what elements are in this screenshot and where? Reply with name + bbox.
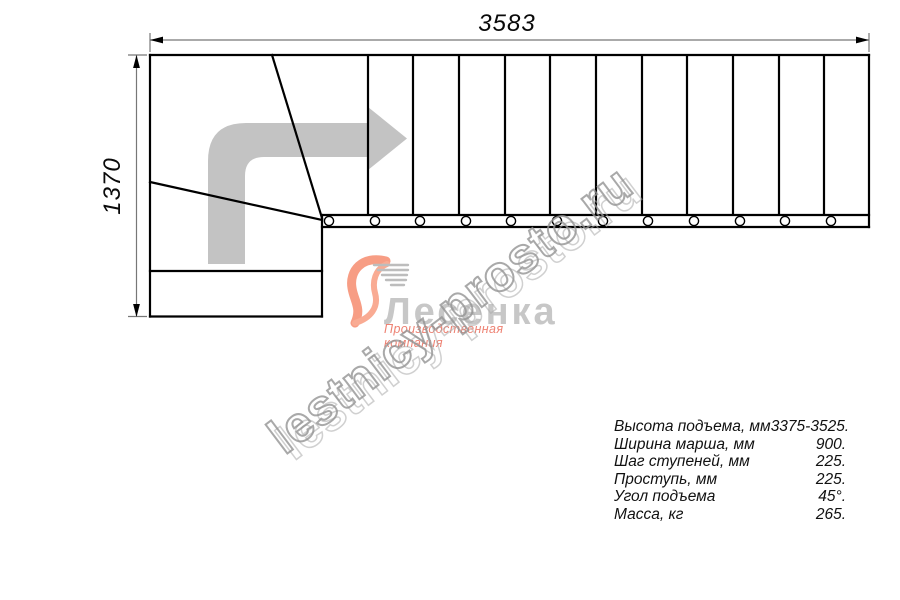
dimension-width-label: 3583 xyxy=(447,10,567,38)
spec-label: Проступь, мм xyxy=(614,471,717,489)
stair-outline xyxy=(150,55,869,317)
spec-row-step-pitch: Шаг ступеней, мм 225. xyxy=(614,453,846,471)
spec-value: 265. xyxy=(816,506,846,524)
spec-row-tread: Проступь, мм 225. xyxy=(614,471,846,489)
spec-value: 3375-3525. xyxy=(771,418,849,436)
spec-value: 900. xyxy=(816,436,846,454)
spec-row-height: Высота подъема, мм 3375-3525. xyxy=(614,418,846,436)
tread-lines xyxy=(368,55,824,215)
spec-value: 225. xyxy=(816,471,846,489)
spec-value: 225. xyxy=(816,453,846,471)
spec-value: 45°. xyxy=(818,488,846,506)
baluster-circles xyxy=(324,216,835,225)
spec-label: Шаг ступеней, мм xyxy=(614,453,750,471)
spec-label: Угол подъема xyxy=(614,488,715,506)
dimension-height-label: 1370 xyxy=(99,126,127,246)
direction-arrow-icon xyxy=(208,107,407,264)
spec-row-mass: Масса, кг 265. xyxy=(614,506,846,524)
spec-label: Высота подъема, мм xyxy=(614,418,771,436)
spec-row-angle: Угол подъема 45°. xyxy=(614,488,846,506)
spec-row-flight-width: Ширина марша, мм 900. xyxy=(614,436,846,454)
spec-label: Масса, кг xyxy=(614,506,683,524)
logo-tagline: Производственная компания xyxy=(384,322,504,350)
stair-drawing-canvas: 3583 1370 Лесенка Производственная компа… xyxy=(0,0,900,600)
spec-table: Высота подъема, мм 3375-3525. Ширина мар… xyxy=(614,418,846,523)
spec-label: Ширина марша, мм xyxy=(614,436,755,454)
